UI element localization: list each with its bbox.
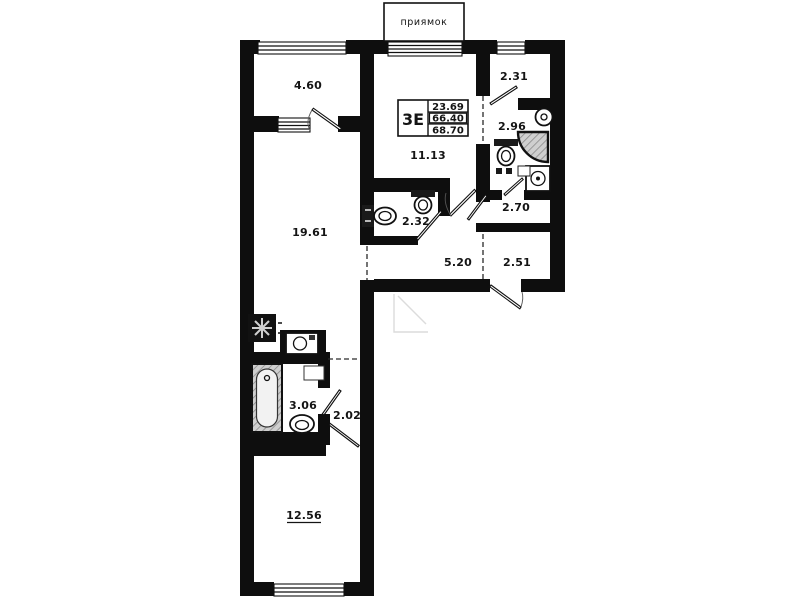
- pit-box: приямок: [384, 3, 464, 41]
- stamp-area-total: 68.70: [432, 126, 464, 137]
- stamp-area-main: 66.40: [432, 114, 464, 125]
- fixtures: [248, 109, 553, 434]
- wall-niche: [304, 366, 324, 380]
- door-swing: [490, 285, 523, 309]
- window: [388, 42, 462, 56]
- shower-cabin: [518, 132, 548, 162]
- floor-plan-page: приямок 3Е 23.69 66.40 68.70 4.60 2.31 2…: [0, 0, 799, 600]
- window: [258, 42, 346, 54]
- room-area-bathroom: 3.06: [289, 399, 317, 412]
- room-area-wardrobe: 2.70: [502, 201, 530, 214]
- toilet: [411, 190, 435, 214]
- room-area-hall-upper: 2.31: [500, 70, 528, 83]
- doors: [308, 86, 523, 447]
- window: [274, 584, 344, 596]
- room-area-bedroom: 12.56: [286, 509, 322, 522]
- shelf-niche: [518, 166, 530, 176]
- washing-machine: [286, 333, 318, 354]
- room-area-living-room: 19.61: [292, 226, 328, 239]
- door-swing: [308, 108, 341, 130]
- bathtub: [252, 364, 282, 432]
- room-area-loggia: 4.60: [294, 79, 322, 92]
- pit-label: приямок: [400, 17, 447, 28]
- window: [497, 42, 525, 54]
- adjacent-core-ghost: [394, 294, 428, 332]
- room-area-shower-room: 2.96: [498, 120, 526, 133]
- stamp-living-area: 23.69: [432, 102, 464, 113]
- ventilation-shaft: [248, 314, 282, 342]
- stamp-flat-type: 3Е: [402, 110, 424, 129]
- sink: [536, 109, 553, 126]
- floor-plan-canvas: приямок 3Е 23.69 66.40 68.70 4.60 2.31 2…: [0, 0, 799, 600]
- door-swing: [329, 423, 359, 447]
- area-stamp: 3Е 23.69 66.40 68.70: [398, 100, 468, 137]
- window: [278, 118, 310, 132]
- sink: [290, 415, 314, 433]
- room-area-kitchen-living: 11.13: [410, 149, 446, 162]
- room-area-entry: 2.51: [503, 256, 531, 269]
- toilet: [494, 139, 518, 174]
- room-area-wc: 2.32: [402, 215, 430, 228]
- door-swing: [490, 86, 517, 105]
- room-area-corridor: 5.20: [444, 256, 472, 269]
- door-swing: [504, 178, 523, 196]
- sink: [362, 205, 396, 227]
- room-area-hall-lower: 2.02: [333, 409, 361, 422]
